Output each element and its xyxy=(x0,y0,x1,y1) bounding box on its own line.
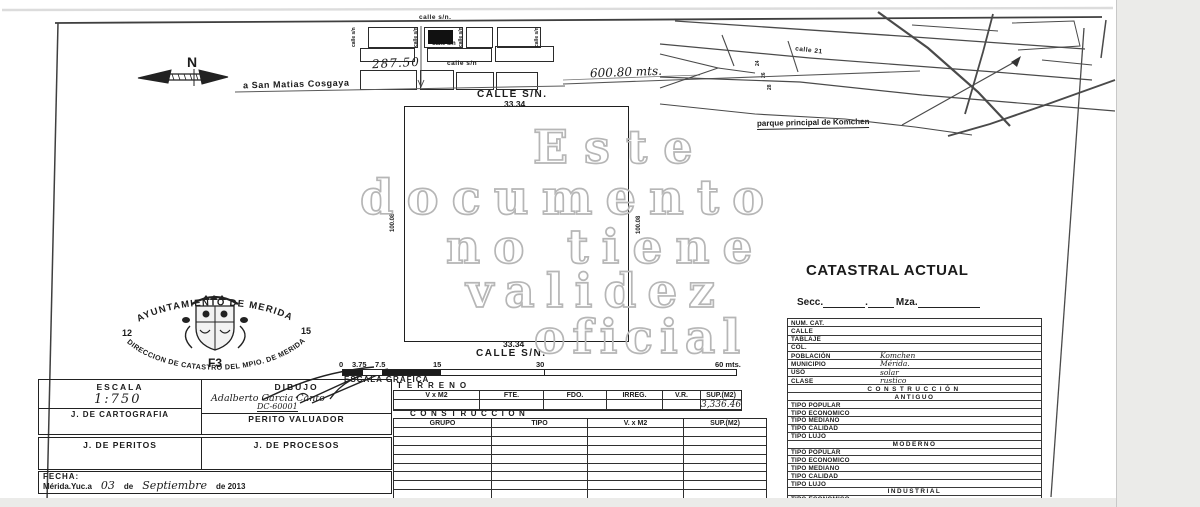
procesos-label: J. DE PROCESOS xyxy=(202,441,391,450)
fecha-month: Septiembre xyxy=(142,480,207,491)
tipo-label: TIPO MEDIANO xyxy=(791,417,840,424)
tipo-label: TIPO LUJO xyxy=(791,481,826,488)
fecha-year: de 2013 xyxy=(216,483,245,491)
section-header: INDUSTRIAL xyxy=(788,488,1041,495)
seal-left-number: 12 xyxy=(122,328,132,338)
seal-code: F3 xyxy=(208,356,222,370)
tipo-row: TIPO ECONOMICO xyxy=(788,456,1041,464)
escala-value: 1:750 xyxy=(94,393,141,406)
field-label: NUM. CAT. xyxy=(791,320,824,327)
section-header: ANTIGUO xyxy=(788,394,1041,401)
secc-mza-line: Secc. . Mza. xyxy=(797,298,980,308)
fecha-day: 03 xyxy=(101,480,115,491)
cadastral-plan-scan: Este documento no tiene validez oficial … xyxy=(0,0,1200,507)
tipo-row: TIPO MEDIANO xyxy=(788,417,1041,425)
border-right xyxy=(1051,28,1084,497)
construccion-empty-row xyxy=(394,464,766,473)
tipo-row: TIPO CALIDAD xyxy=(788,425,1041,433)
catastral-table: NUM. CAT. CALLE TABLAJE COL. POBLACIÓNKo… xyxy=(787,318,1042,507)
catastral-field-row: USOsolar xyxy=(788,369,1041,377)
section-header-row: ANTIGUO xyxy=(788,393,1041,401)
construccion-empty-row xyxy=(394,455,766,464)
scale-segment xyxy=(343,370,363,375)
catastral-field-row: NUM. CAT. xyxy=(788,319,1041,327)
terreno-sup-value: 3,336.46 xyxy=(701,400,741,410)
field-label: MUNICIPIO xyxy=(791,361,826,368)
tipo-row: TIPO MEDIANO xyxy=(788,464,1041,472)
scan-bottom-band xyxy=(0,498,1116,507)
field-label: CALLE xyxy=(791,328,813,335)
terreno-header-cell: IRREG. xyxy=(607,391,663,400)
construccion-empty-row xyxy=(394,446,766,455)
terreno-header-cell: SUP.(M2) xyxy=(701,391,741,400)
peritos-label: J. DE PERITOS xyxy=(39,441,201,450)
tipo-label: TIPO MEDIANO xyxy=(791,465,840,472)
field-label: POBLACIÓN xyxy=(791,353,831,360)
scale-bar xyxy=(342,369,737,376)
page-top-shadow xyxy=(2,8,1113,10)
catastral-field-row: CLASErustico xyxy=(788,377,1041,385)
section-header: MODERNO xyxy=(788,441,1041,448)
field-label: USO xyxy=(791,369,805,376)
fecha-line: Mérida.Yuc.a 03 de Septiembre de 2013 xyxy=(43,480,245,491)
terreno-header-cell: V.R. xyxy=(663,391,701,400)
watermark-line: validez xyxy=(466,268,726,315)
location-map-streets xyxy=(660,12,1115,136)
scale-segment xyxy=(441,370,545,375)
terreno-header-cell: FDO. xyxy=(544,391,607,400)
municipal-seal: AYUNTAMIENTO DE MERIDA DIRECCION DE CATA… xyxy=(98,280,333,380)
field-label: TABLAJE xyxy=(791,336,821,343)
fecha-place: Mérida.Yuc.a xyxy=(43,483,92,491)
tipo-row: TIPO POPULAR xyxy=(788,401,1041,409)
info-box-escala-dibujo: ESCALA 1:750 J. DE CARTOGRAFIA DIBUJO Ad… xyxy=(38,379,392,435)
section-header-row: INDUSTRIAL xyxy=(788,488,1041,496)
field-label: COL. xyxy=(791,344,807,351)
scale-segment xyxy=(363,370,382,375)
catastral-field-row: CALLE xyxy=(788,327,1041,335)
seal-right-number: 15 xyxy=(301,326,311,336)
scale-segment xyxy=(545,370,736,375)
cartografia-label: J. DE CARTOGRAFIA xyxy=(39,411,201,419)
tipo-row: TIPO ECONOMICO xyxy=(788,409,1041,417)
tipo-label: TIPO POPULAR xyxy=(791,402,841,409)
mza-label: Mza. xyxy=(896,298,918,308)
dibujo-label: DIBUJO xyxy=(202,383,391,392)
secc-label: Secc. xyxy=(797,298,823,308)
tipo-row: TIPO POPULAR xyxy=(788,449,1041,457)
field-value: rustico xyxy=(880,376,906,385)
terreno-table: V x M2 FTE. FDO. IRREG. V.R. SUP.(M2) 3,… xyxy=(393,390,742,411)
tipo-label: TIPO ECONOMICO xyxy=(791,410,850,417)
section-header-row: MODERNO xyxy=(788,441,1041,449)
construccion-header-cell: TIPO xyxy=(492,419,588,428)
mza-blank xyxy=(918,298,980,308)
watermark-line: documento xyxy=(360,174,777,222)
tipo-label: TIPO LUJO xyxy=(791,433,826,440)
fecha-de: de xyxy=(124,483,133,491)
road-600 xyxy=(563,71,920,84)
construccion-header-row: CONSTRUCCIÓN xyxy=(788,385,1041,393)
scale-segment xyxy=(382,370,441,375)
secc-blank xyxy=(823,298,865,308)
catastral-field-row: POBLACIÓNKomchen xyxy=(788,352,1041,360)
catastral-field-row: TABLAJE xyxy=(788,336,1041,344)
perito-valuador-label: PERITO VALUADOR xyxy=(202,415,391,424)
tipo-label: TIPO POPULAR xyxy=(791,449,841,456)
tipo-row: TIPO LUJO xyxy=(788,433,1041,441)
terreno-header-cell: V x M2 xyxy=(394,391,480,400)
construccion-header-cell: GRUPO xyxy=(394,419,492,428)
field-label: CLASE xyxy=(791,378,813,385)
info-box-peritos-procesos: J. DE PERITOS J. DE PROCESOS xyxy=(38,437,392,470)
watermark-line: Este xyxy=(533,124,708,170)
tipo-row: TIPO CALIDAD xyxy=(788,472,1041,480)
construccion-empty-row xyxy=(394,428,766,437)
catastral-field-row: MUNICIPIOMérida. xyxy=(788,360,1041,368)
parcel-front-bottom: 33.34 xyxy=(503,340,524,349)
scan-right-band xyxy=(1116,0,1200,507)
tipo-row: TIPO LUJO xyxy=(788,480,1041,488)
compass-arrow xyxy=(138,69,228,86)
poi-arrow-head xyxy=(1011,56,1021,67)
tipo-label: TIPO ECONOMICO xyxy=(791,457,850,464)
sketch-subject-parcel xyxy=(428,30,453,44)
tipo-label: TIPO CALIDAD xyxy=(791,473,838,480)
secc-blank2 xyxy=(868,298,894,308)
construccion-header-cell: V. x M2 xyxy=(588,419,684,428)
construccion-empty-row xyxy=(394,437,766,446)
tipo-label: TIPO CALIDAD xyxy=(791,425,838,432)
construccion-empty-row xyxy=(394,481,766,490)
info-box-fecha: FECHA: Mérida.Yuc.a 03 de Septiembre de … xyxy=(38,471,392,494)
terreno-header-cell: FTE. xyxy=(480,391,544,400)
construccion-table: GRUPO TIPO V. x M2 SUP.(M2) xyxy=(393,418,767,500)
construccion-header-cell: SUP.(M2) xyxy=(684,419,766,428)
border-top xyxy=(55,17,1102,23)
escala-label: ESCALA xyxy=(39,383,201,392)
watermark-line: oficial xyxy=(534,314,747,361)
construccion-header: CONSTRUCCIÓN xyxy=(788,386,1041,393)
construccion-empty-row xyxy=(394,472,766,481)
road-san-matias xyxy=(235,86,565,92)
escala-underline xyxy=(39,408,201,409)
dibujo-code: DC-60001 xyxy=(257,403,298,412)
